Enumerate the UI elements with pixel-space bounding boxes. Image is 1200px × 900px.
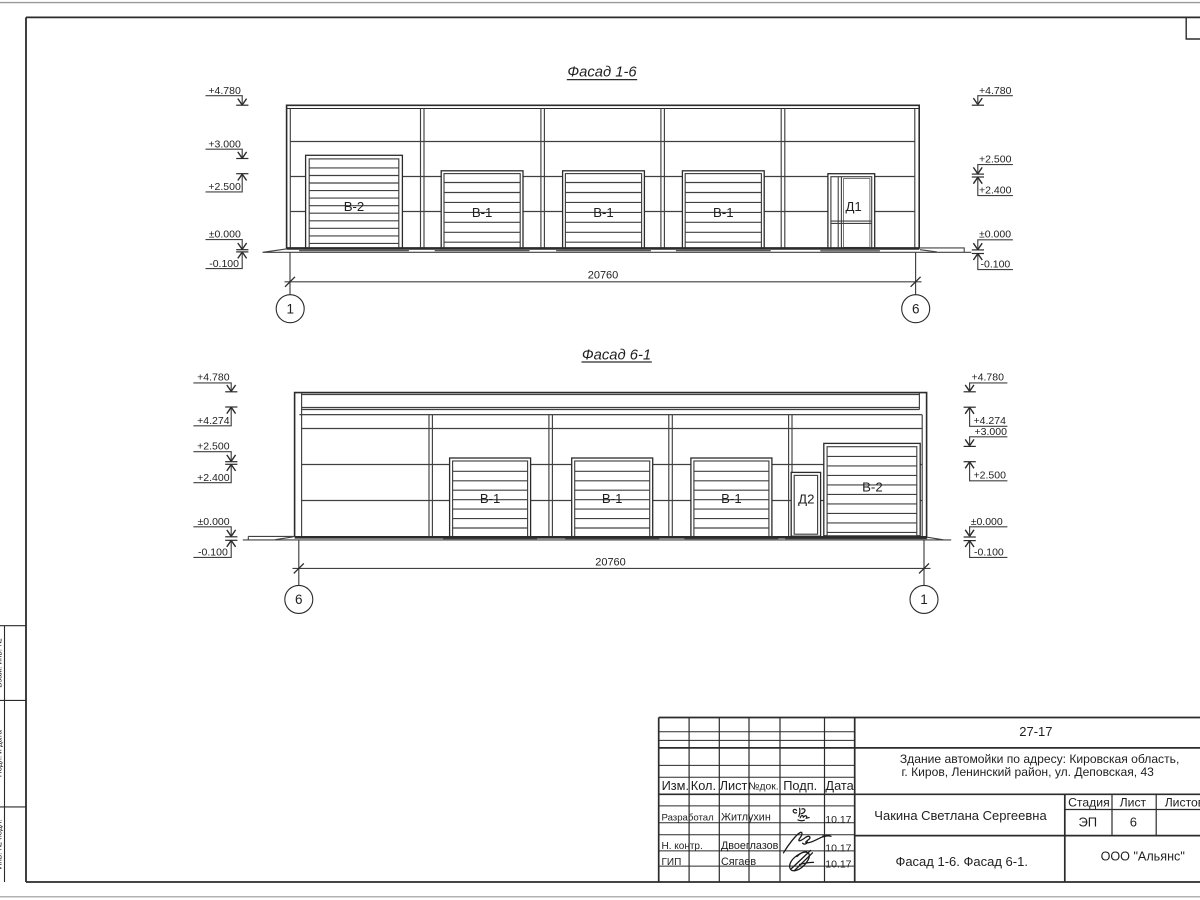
svg-text:В-1: В-1: [593, 205, 614, 220]
svg-text:В-2: В-2: [344, 199, 365, 214]
svg-text:Житлухин: Житлухин: [721, 811, 771, 823]
svg-text:Н. контр.: Н. контр.: [662, 841, 703, 852]
svg-text:Двоеглазов: Двоеглазов: [721, 840, 779, 852]
svg-text:+4.780: +4.780: [979, 85, 1012, 97]
svg-text:27-17: 27-17: [1019, 724, 1052, 739]
svg-text:-0.100: -0.100: [974, 546, 1004, 558]
svg-text:+2.500: +2.500: [974, 470, 1007, 482]
svg-text:Кол.: Кол.: [691, 778, 716, 793]
svg-text:Лист: Лист: [1120, 796, 1147, 810]
svg-text:-0.100: -0.100: [209, 258, 239, 270]
svg-text:Д2: Д2: [798, 491, 814, 506]
svg-text:Инв. № подл.: Инв. № подл.: [0, 819, 4, 869]
svg-text:10.17: 10.17: [825, 814, 851, 826]
svg-text:-0.100: -0.100: [981, 259, 1011, 271]
svg-text:+2.500: +2.500: [979, 153, 1012, 165]
svg-text:±0.000: ±0.000: [198, 516, 230, 528]
svg-text:В-2: В-2: [862, 480, 883, 495]
svg-text:6: 6: [295, 592, 303, 607]
svg-text:+4.780: +4.780: [972, 371, 1005, 383]
svg-text:Изм.: Изм.: [662, 778, 689, 793]
svg-text:+4.274: +4.274: [197, 415, 230, 427]
svg-text:В-1: В-1: [472, 205, 493, 220]
svg-text:1: 1: [286, 301, 294, 316]
svg-text:Фасад 6-1: Фасад 6-1: [582, 347, 651, 363]
svg-text:20760: 20760: [588, 270, 619, 282]
svg-text:+3.000: +3.000: [975, 426, 1008, 438]
svg-text:10.17: 10.17: [825, 858, 851, 870]
svg-text:1: 1: [920, 592, 928, 607]
svg-text:Чакина Светлана Сергеевна: Чакина Светлана Сергеевна: [874, 808, 1047, 823]
svg-text:Стадия: Стадия: [1068, 796, 1110, 810]
svg-text:10.17: 10.17: [825, 843, 851, 855]
svg-text:Разработал: Разработал: [662, 812, 714, 823]
svg-text:Здание автомойки по адресу: Ки: Здание автомойки по адресу: Кировская об…: [900, 752, 1179, 766]
svg-text:Подп. и дата: Подп. и дата: [0, 729, 4, 777]
svg-text:Подп.: Подп.: [783, 778, 817, 793]
svg-text:Сягаев: Сягаев: [721, 856, 756, 868]
svg-text:№док.: №док.: [748, 782, 778, 793]
svg-text:20760: 20760: [595, 556, 626, 568]
svg-text:Д1: Д1: [845, 199, 861, 214]
svg-text:-0.100: -0.100: [198, 546, 228, 558]
svg-text:+4.780: +4.780: [208, 85, 241, 97]
svg-text:6: 6: [1130, 815, 1137, 830]
svg-text:Фасад 1-6: Фасад 1-6: [567, 65, 637, 81]
svg-text:±0.000: ±0.000: [209, 229, 241, 241]
svg-text:Дата: Дата: [825, 778, 854, 793]
svg-text:ЭП: ЭП: [1078, 814, 1097, 829]
svg-text:+3.000: +3.000: [208, 138, 241, 150]
svg-text:В-1: В-1: [713, 205, 734, 220]
svg-text:Лист: Лист: [720, 778, 748, 793]
svg-text:г. Киров, Ленинский район, ул.: г. Киров, Ленинский район, ул. Деповская…: [901, 765, 1154, 779]
svg-text:+4.780: +4.780: [197, 371, 230, 383]
svg-text:+2.500: +2.500: [197, 441, 230, 453]
svg-text:ГИП: ГИП: [662, 857, 682, 868]
svg-text:Взам. инв. №: Взам. инв. №: [0, 638, 4, 688]
svg-text:В-1: В-1: [721, 491, 742, 506]
svg-text:±0.000: ±0.000: [979, 229, 1011, 241]
svg-text:В-1: В-1: [480, 491, 501, 506]
svg-text:+2.400: +2.400: [979, 185, 1012, 197]
svg-text:Листов: Листов: [1165, 796, 1200, 810]
svg-text:±0.000: ±0.000: [971, 516, 1003, 528]
svg-text:ООО "Альянс": ООО "Альянс": [1101, 850, 1185, 864]
svg-text:В-1: В-1: [602, 491, 623, 506]
svg-text:Фасад 1-6. Фасад 6-1.: Фасад 1-6. Фасад 6-1.: [895, 854, 1028, 869]
svg-text:6: 6: [912, 301, 920, 316]
svg-text:+2.400: +2.400: [197, 472, 230, 484]
